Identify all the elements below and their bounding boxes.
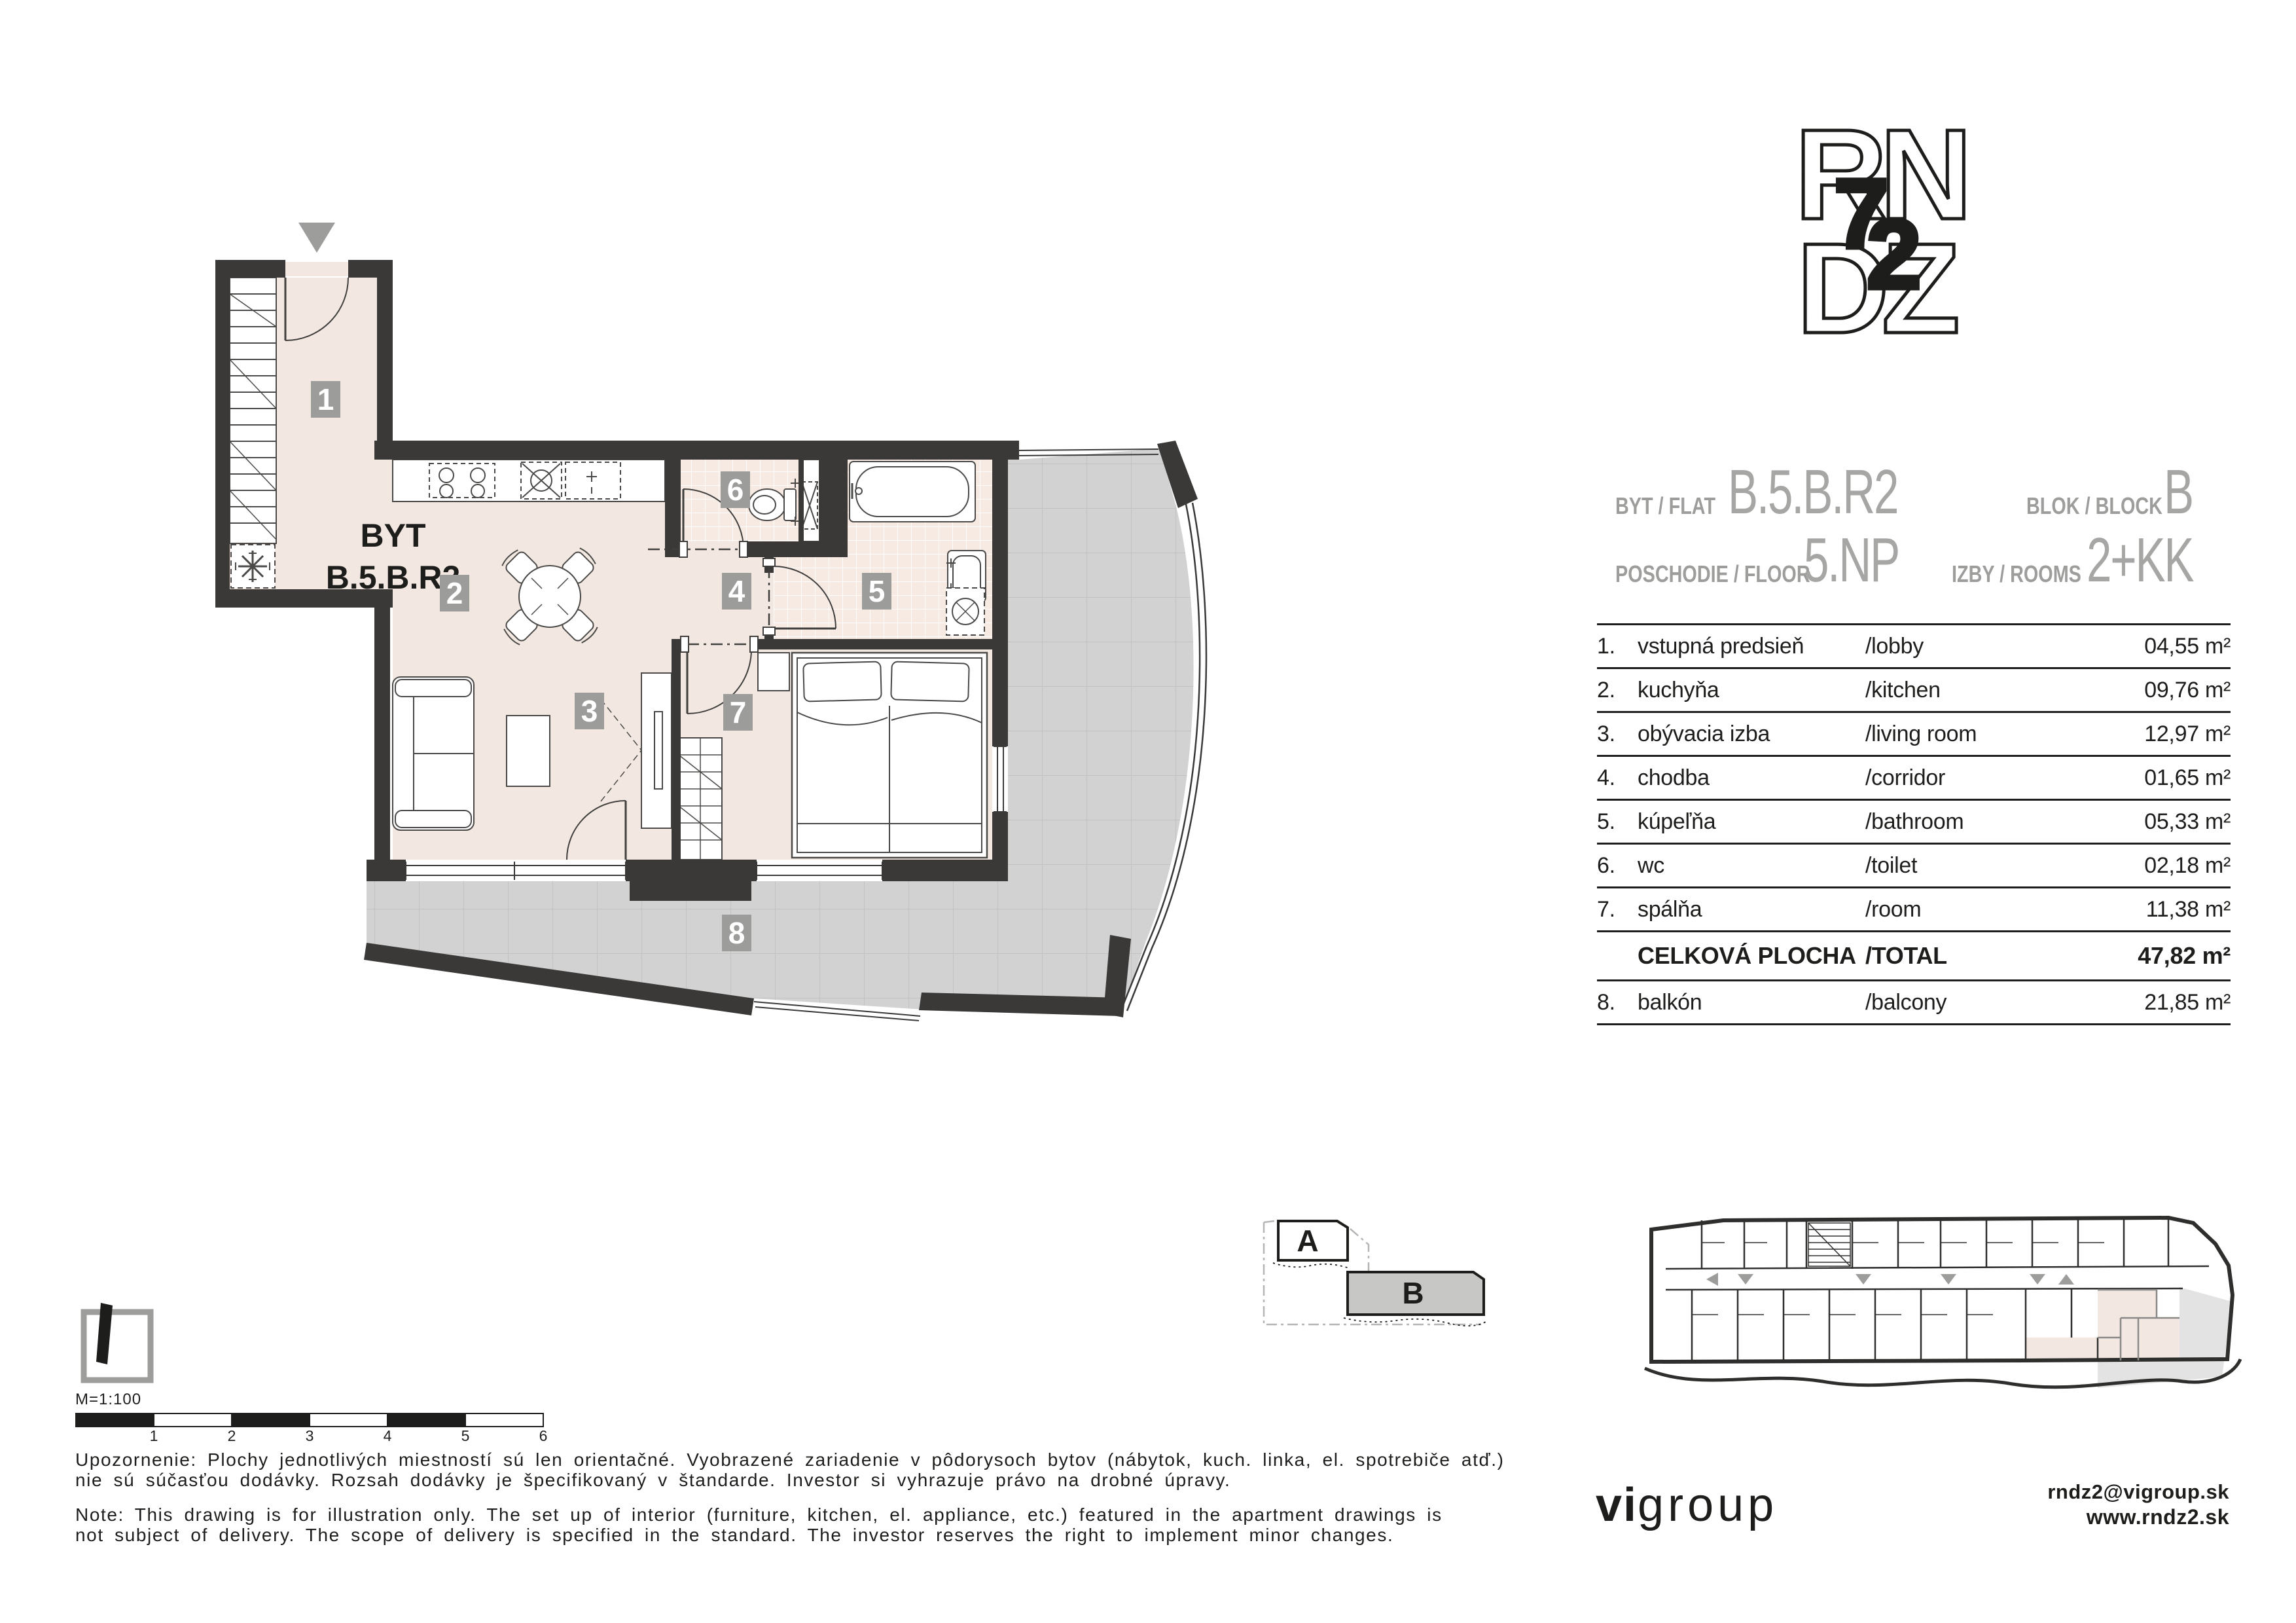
row-area: 02,18 m²	[2103, 853, 2231, 879]
table-row: 4. chodba /corridor 01,65 m²	[1597, 757, 2231, 801]
row-num: 1.	[1597, 634, 1638, 659]
row-num: 3.	[1597, 721, 1638, 747]
room-badge-kitchen: 2	[440, 575, 469, 611]
row-name-en: /living room	[1865, 721, 2103, 747]
floor-label: POSCHODIE / FLOOR	[1615, 560, 1810, 588]
rooms-label: IZBY / ROOMS	[1952, 560, 2081, 588]
scale-tick: 6	[531, 1427, 555, 1445]
room-badge-bedroom: 7	[723, 694, 753, 731]
stairs-icon	[1808, 1223, 1850, 1266]
scale-bar-svg	[75, 1413, 544, 1427]
row-area: 05,33 m²	[2103, 809, 2231, 835]
row-name-sk: kuchyňa	[1638, 678, 1865, 703]
scale-tick: 3	[298, 1427, 321, 1445]
scale-label: M=1:100	[75, 1391, 544, 1409]
scale-ticks: 1 2 3 4 5 6	[75, 1427, 543, 1444]
block-key: A B	[1240, 1195, 1522, 1349]
row-num: 2.	[1597, 678, 1638, 703]
apartment-floorplan: BYT B.5.B.R2 1 2 3 4 5 6 7 8	[196, 196, 1244, 1080]
contact-email: rndz2@vigroup.sk	[1964, 1480, 2229, 1504]
row-num: 7.	[1597, 897, 1638, 922]
total-label-sk: CELKOVÁ PLOCHA	[1638, 942, 1865, 970]
row-name-en: /balcony	[1865, 990, 2103, 1015]
sofa-icon	[393, 677, 474, 830]
room-badge-lobby: 1	[311, 381, 340, 418]
rndz72-logo: R N D Z 7 2	[1767, 98, 2022, 386]
table-row: 5. kúpeľňa /bathroom 05,33 m²	[1597, 801, 2231, 845]
row-name-sk: vstupná predsieň	[1638, 634, 1865, 659]
unit-label-line1: BYT	[313, 515, 473, 556]
note-en-line1: Note: This drawing is for illustration o…	[75, 1504, 1443, 1525]
row-name-en: /kitchen	[1865, 678, 2103, 703]
table-row: 7. spálňa /room 11,38 m²	[1597, 888, 2231, 932]
row-name-sk: balkón	[1638, 990, 1865, 1015]
vigroup-logo-light: group	[1638, 1479, 1778, 1531]
room-badge-corridor: 4	[722, 573, 751, 610]
row-num: 8.	[1597, 990, 1638, 1015]
row-area: 12,97 m²	[2103, 721, 2231, 747]
table-row: 1. vstupná predsieň /lobby 04,55 m²	[1597, 623, 2231, 669]
note-sk-line1: Upozornenie: Plochy jednotlivých miestno…	[75, 1450, 1505, 1470]
living-window	[406, 862, 626, 880]
row-area: 04,55 m²	[2103, 634, 2231, 659]
row-name-en: /lobby	[1865, 634, 2103, 659]
orientation-symbol	[77, 1302, 162, 1387]
floorplan-sheet: { "logo": {"r":"R","n":"N","d":"D","z":"…	[0, 0, 2296, 1623]
building-overview-svg	[1640, 1203, 2261, 1410]
bedroom-window	[757, 862, 882, 880]
vigroup-logo-bold: vi	[1596, 1479, 1638, 1531]
row-area: 11,38 m²	[2103, 897, 2231, 922]
row-name-en: /bathroom	[1865, 809, 2103, 835]
scale-tick: 1	[142, 1427, 166, 1445]
room-table: 1. vstupná predsieň /lobby 04,55 m² 2. k…	[1597, 623, 2231, 1025]
nightstand-icon	[758, 653, 789, 691]
table-row-balcony: 8. balkón /balcony 21,85 m²	[1597, 981, 2231, 1025]
contact-info: rndz2@vigroup.sk www.rndz2.sk	[1964, 1480, 2229, 1529]
block-value: B	[2164, 461, 2193, 524]
row-name-en: /corridor	[1865, 765, 2103, 791]
row-name-sk: wc	[1638, 853, 1865, 879]
floor-value: 5.NP	[1804, 529, 1899, 592]
fridge-icon	[231, 545, 275, 588]
row-area: 21,85 m²	[2103, 990, 2231, 1015]
block-b-letter: B	[1402, 1276, 1424, 1310]
table-row: 3. obývacia izba /living room 12,97 m²	[1597, 713, 2231, 757]
washing-machine-icon	[946, 588, 984, 635]
note-sk-line2: nie sú súčasťou dodávky. Rozsah dodávky …	[75, 1470, 1505, 1490]
entry-arrow-icon	[298, 223, 335, 253]
room-badge-bathroom: 5	[862, 573, 891, 610]
row-name-en: /room	[1865, 897, 2103, 922]
row-num: 6.	[1597, 853, 1638, 879]
note-en: Note: This drawing is for illustration o…	[75, 1504, 1443, 1545]
total-area: 47,82 m²	[2103, 942, 2231, 970]
scale-tick: 5	[454, 1427, 477, 1445]
orientation-symbol-svg	[77, 1302, 162, 1387]
kitchen-counter-icon	[393, 460, 665, 501]
total-label-en: /TOTAL	[1865, 942, 2103, 970]
row-name-sk: spálňa	[1638, 897, 1865, 922]
table-total-row: CELKOVÁ PLOCHA /TOTAL 47,82 m²	[1597, 932, 2231, 981]
row-name-sk: kúpeľňa	[1638, 809, 1865, 835]
balcony-door	[994, 746, 1007, 812]
flat-label: BYT / FLAT	[1615, 492, 1715, 520]
flat-value: B.5.B.R2	[1728, 461, 1897, 524]
vigroup-logo: vigroup	[1596, 1478, 1778, 1532]
logo-digit-2: 2	[1867, 199, 1921, 309]
room-badge-balcony: 8	[722, 915, 751, 951]
note-sk: Upozornenie: Plochy jednotlivých miestno…	[75, 1450, 1505, 1490]
floorplan-drawing	[196, 196, 1244, 1080]
room-badge-living: 3	[575, 693, 604, 729]
rndz72-logo-svg: R N D Z 7 2	[1767, 98, 2022, 386]
scale-bar: M=1:100 1 2 3 4 5 6	[75, 1391, 544, 1444]
corridor-arrows	[1706, 1273, 2074, 1286]
table-row: 6. wc /toilet 02,18 m²	[1597, 845, 2231, 888]
row-name-en: /toilet	[1865, 853, 2103, 879]
block-key-svg: A B	[1240, 1195, 1522, 1349]
row-num: 4.	[1597, 765, 1638, 791]
block-a-letter: A	[1297, 1224, 1318, 1258]
row-area: 01,65 m²	[2103, 765, 2231, 791]
scale-tick: 4	[376, 1427, 399, 1445]
building-overview	[1640, 1203, 2261, 1410]
wardrobe-lobby-icon	[230, 278, 276, 543]
bed-icon	[792, 653, 987, 858]
row-num: 5.	[1597, 809, 1638, 835]
block-label: BLOK / BLOCK	[2026, 492, 2162, 520]
row-area: 09,76 m²	[2103, 678, 2231, 703]
wardrobe-bedroom-icon	[679, 738, 722, 860]
room-badge-wc: 6	[721, 471, 750, 508]
table-row: 2. kuchyňa /kitchen 09,76 m²	[1597, 669, 2231, 713]
contact-web: www.rndz2.sk	[1964, 1504, 2229, 1529]
row-name-sk: chodba	[1638, 765, 1865, 791]
scale-tick: 2	[220, 1427, 243, 1445]
row-name-sk: obývacia izba	[1638, 721, 1865, 747]
note-en-line2: not subject of delivery. The scope of de…	[75, 1525, 1443, 1545]
rooms-value: 2+KK	[2087, 529, 2193, 592]
coffee-table-icon	[507, 716, 550, 786]
bathtub-icon	[850, 462, 975, 522]
